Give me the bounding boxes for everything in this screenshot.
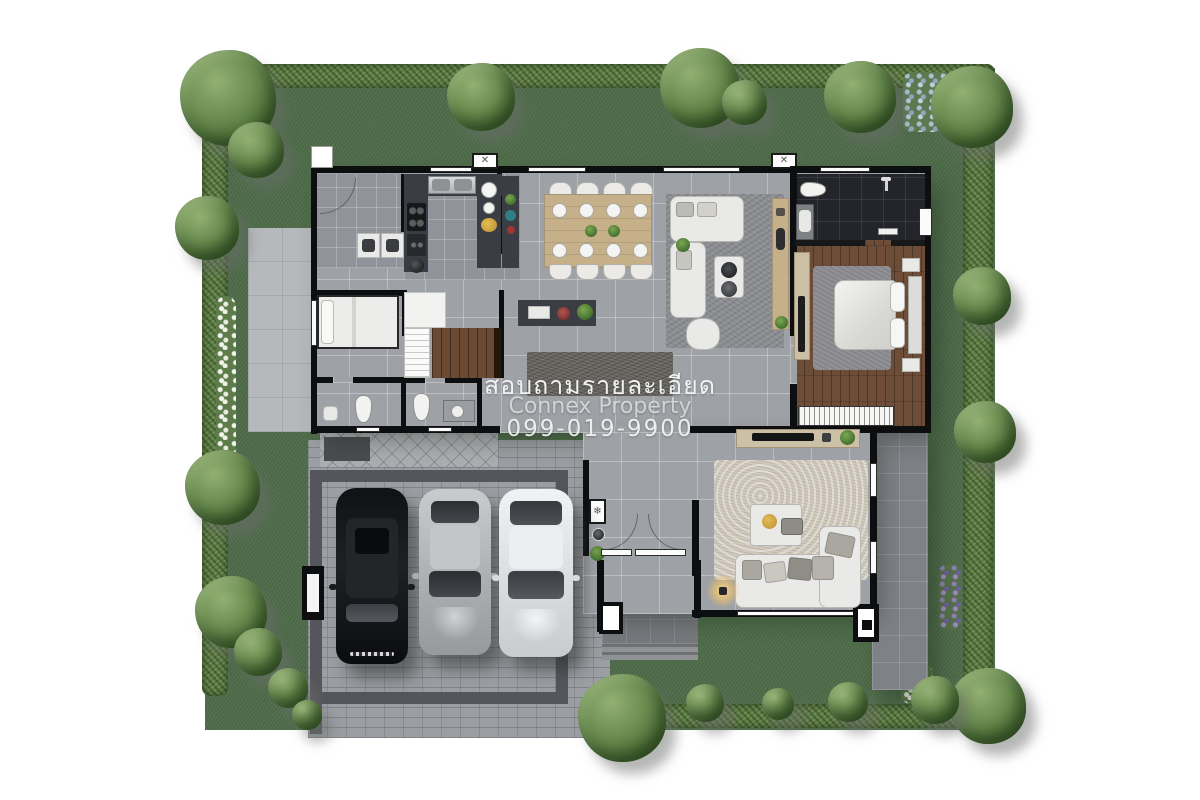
tree [447, 63, 515, 131]
living-console-table [772, 198, 789, 330]
tree [931, 66, 1013, 148]
place-setting [552, 243, 567, 258]
sofa-cushion [787, 557, 813, 581]
door-mat-dark [324, 437, 370, 461]
tree [954, 401, 1016, 463]
master-bed-pillow [890, 282, 905, 312]
car-windshield [508, 571, 564, 599]
tree [578, 674, 666, 762]
small-bed-duvet-fold [352, 297, 356, 347]
table-centerpiece [585, 225, 597, 237]
stair-edge [494, 328, 501, 378]
family-tv [752, 433, 814, 441]
fruit-plate [481, 218, 497, 232]
x-mark-icon: ✕ [481, 156, 489, 166]
place-setting [579, 243, 594, 258]
bath1-door-opening [333, 377, 353, 383]
place-setting [606, 203, 621, 218]
porch-column [599, 602, 623, 634]
car-windshield [346, 604, 398, 622]
flower-bed-purple-right [938, 564, 962, 630]
master-tv [798, 296, 805, 352]
place-setting [606, 243, 621, 258]
car-sunroof [355, 528, 389, 554]
hall-opening [500, 426, 690, 433]
shower-door-east [919, 208, 932, 236]
car-mirror [407, 584, 415, 590]
car-roof [430, 525, 480, 569]
window-north-living [663, 167, 740, 172]
tree [234, 628, 282, 676]
car-mirror [492, 575, 500, 581]
bush [292, 700, 322, 730]
window-family-south [737, 611, 855, 616]
wall-east [925, 166, 931, 432]
car-roof [509, 527, 563, 569]
small-bed-pillow [321, 300, 334, 344]
wall-bath-east [477, 377, 482, 433]
bath-mat [878, 228, 898, 235]
sedan-white [499, 489, 573, 657]
tree [824, 61, 896, 133]
car-mirror [412, 573, 420, 579]
place-setting [552, 203, 567, 218]
island-plant [577, 304, 593, 320]
window-bath2-south [428, 427, 452, 432]
sofa-cushion [763, 561, 788, 584]
master-nightstand-south [902, 358, 920, 372]
x-mark-icon: ✕ [780, 156, 788, 166]
car-mirror [572, 575, 580, 581]
master-nightstand-north [902, 258, 920, 272]
island-food-tray [528, 306, 550, 319]
entry-door-left [601, 549, 632, 556]
oven-drawers [407, 234, 426, 256]
dining-chair [576, 264, 599, 280]
car-windshield [429, 571, 481, 597]
tree [722, 80, 767, 125]
dining-chair [630, 264, 653, 280]
stair-flight-wood [432, 328, 500, 378]
console-vase [776, 228, 785, 250]
kitchen-sink-basin-right [454, 179, 472, 191]
entry-steps [602, 644, 698, 660]
serving-bowl-large [481, 182, 497, 198]
floor-lamp [719, 587, 727, 595]
master-bed-duvet [834, 280, 896, 350]
island-cake-plate [557, 307, 570, 320]
side-patio [248, 228, 315, 432]
master-bed-pillow [890, 318, 905, 348]
side-terrace [872, 432, 928, 690]
car-rear-window [431, 501, 479, 523]
window-family-east-1 [870, 463, 877, 497]
bush [686, 684, 724, 722]
bush [911, 676, 959, 724]
shower-pipe [885, 180, 888, 191]
sofa-corner-plant [676, 238, 690, 252]
teal-bowl [505, 210, 516, 221]
car-grille [350, 652, 394, 656]
snowflake-icon: ❄ [593, 507, 601, 517]
window-family-east-2 [870, 541, 877, 574]
tree [953, 267, 1011, 325]
bathroom1-sink [323, 406, 338, 421]
table-centerpiece [608, 225, 620, 237]
place-setting [579, 203, 594, 218]
master-bed-headboard [908, 276, 922, 354]
yellow-bowl [762, 514, 777, 529]
master-window-blinds [798, 406, 894, 426]
serving-bowl-small [483, 202, 495, 214]
washing-machine-1-drum [362, 239, 375, 252]
console-plant-family [840, 430, 855, 445]
tree [228, 122, 284, 178]
tree [185, 450, 260, 525]
suv-black [336, 488, 408, 664]
media-decor [822, 433, 831, 442]
place-setting [633, 203, 648, 218]
sofa-cushion [742, 560, 762, 580]
flower-bed-white-left [216, 296, 236, 464]
car-mirror [329, 584, 337, 590]
bush [762, 688, 794, 720]
bathroom2-sink [451, 405, 464, 418]
sofa-cushion [676, 202, 694, 217]
wall-ensuite-bedroom [795, 240, 925, 246]
pot-on-counter [409, 258, 424, 273]
place-setting [633, 243, 648, 258]
living-armchair [686, 318, 720, 350]
sofa-cushion [812, 556, 834, 580]
ensuite-sink [799, 210, 811, 232]
coffee-table-tray [721, 262, 737, 278]
wall-bath-divider [401, 382, 406, 433]
sofa-cushion [676, 250, 692, 270]
stair-landing [404, 292, 446, 328]
watermark-rug [527, 352, 673, 396]
sideboard-plant [505, 194, 516, 205]
ensuite-door-opening [865, 240, 891, 246]
side-gate-panel [307, 574, 319, 612]
stair-flight-lower [404, 328, 430, 378]
family-corner-pillar-core [862, 620, 872, 630]
dining-chair [603, 264, 626, 280]
entry-door-right [635, 549, 686, 556]
window-north-ensuite [820, 167, 870, 172]
coffee-table-tray [721, 281, 737, 297]
washing-machine-2-drum [386, 239, 399, 252]
console-decor [776, 208, 785, 216]
console-plant [775, 316, 788, 329]
car-rear-window [510, 501, 562, 525]
red-dish [507, 226, 515, 234]
tree [175, 196, 239, 260]
floor-plan-rendering: { "watermark": { "inquiry": "สอบถามรายละ… [0, 0, 1200, 800]
window-north-dining [528, 167, 586, 172]
wall-porch-east [694, 560, 701, 618]
window-bath1-south [356, 427, 380, 432]
stove-cooktop [407, 203, 426, 231]
hedge-right [963, 64, 993, 728]
ac-unit-kitchen: ✕ [472, 153, 498, 169]
table-tray [781, 518, 803, 535]
sedan-silver [419, 489, 491, 655]
kitchen-sink-basin-left [432, 179, 450, 191]
tree [950, 668, 1026, 744]
car-hood-shine [431, 607, 479, 641]
sofa-cushion [697, 202, 717, 217]
bush [828, 682, 868, 722]
car-hood-shine [511, 609, 561, 643]
window-north-kitchen [430, 167, 472, 172]
dining-sideboard [502, 176, 519, 268]
chimney-box [311, 146, 333, 168]
dining-chair [549, 264, 572, 280]
wall-family-east [870, 432, 877, 616]
